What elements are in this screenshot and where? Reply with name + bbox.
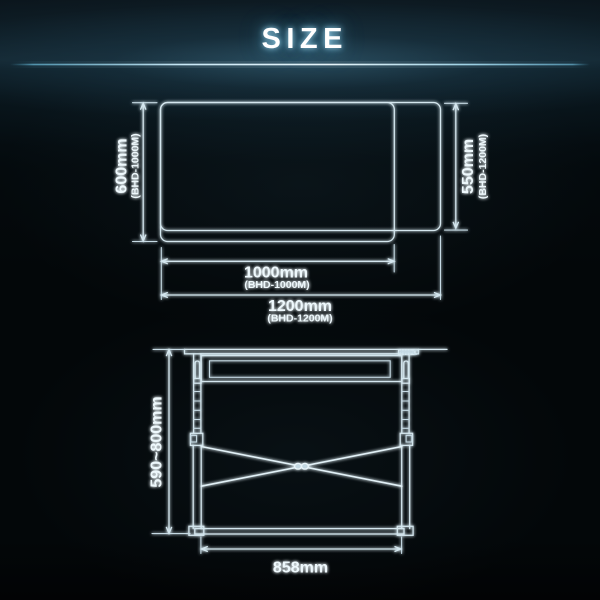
svg-text:(BHD-1000M): (BHD-1000M) <box>130 133 142 198</box>
svg-text:600mm: 600mm <box>114 138 131 193</box>
svg-text:(BHD-1000M): (BHD-1000M) <box>244 279 309 291</box>
svg-text:(BHD-1200M): (BHD-1200M) <box>477 134 489 199</box>
svg-text:550mm: 550mm <box>460 139 477 194</box>
svg-text:(BHD-1200M): (BHD-1200M) <box>267 312 332 324</box>
svg-text:858mm: 858mm <box>273 560 328 577</box>
svg-text:590~800mm: 590~800mm <box>149 396 166 487</box>
